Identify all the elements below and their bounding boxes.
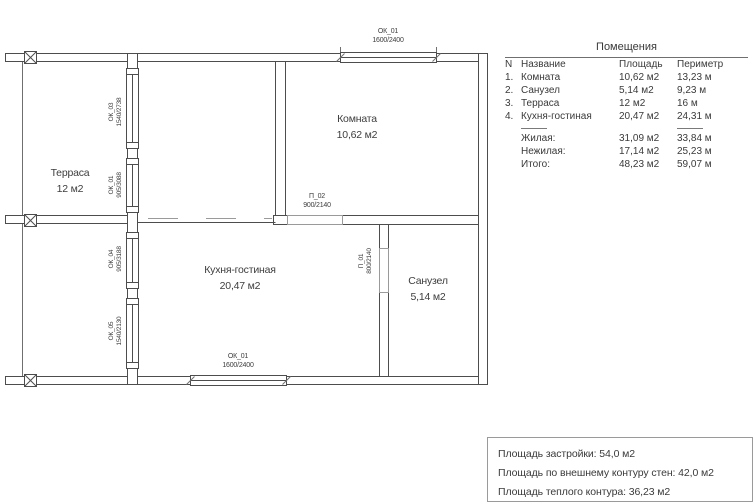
floor-plan-page: { "plan": { "room_labels": { "terrace": … [0, 0, 753, 502]
total-perimeter: 59,07 м [677, 159, 748, 171]
cell-perimeter: 24,31 м [677, 111, 748, 123]
door-code: П_01 [358, 248, 366, 274]
summary-line-warm-contour: Площадь теплого контура: 36,23 м2 [498, 483, 752, 502]
window-size: 1600/2400 [372, 36, 403, 45]
cell-name: Терраса [521, 98, 619, 110]
total-area: 31,09 м2 [619, 133, 677, 145]
window-size: 905/3188 [116, 246, 124, 272]
rooms-table-header: N Название Площадь Периметр [505, 59, 748, 71]
room-area: 10,62 м2 [337, 127, 378, 143]
cell-name: Кухня-гостиная [521, 111, 619, 123]
cell-name: Санузел [521, 85, 619, 97]
walls [6, 54, 488, 385]
room-name: Санузел [408, 273, 448, 289]
separator-dash [677, 128, 703, 129]
room-area: 20,47 м2 [204, 278, 276, 294]
summary-box: Площадь застройки: 54,0 м2 Площадь по вн… [487, 437, 753, 502]
window-left-1-label: ОК_03 1540/2738 [108, 98, 124, 127]
table-total-row: Жилая: 31,09 м2 33,84 м [505, 133, 748, 145]
door-size: 800/2140 [366, 248, 374, 274]
cell-area: 20,47 м2 [619, 111, 677, 123]
table-row: 2. Санузел 5,14 м2 9,23 м [505, 85, 748, 97]
col-header-area: Площадь [619, 59, 677, 71]
cell-area: 5,14 м2 [619, 85, 677, 97]
window-left-4-label: ОК_05 1540/2130 [108, 317, 124, 346]
window-code: ОК_01 [108, 172, 116, 198]
window-left-3-label: ОК_04 905/3188 [108, 246, 124, 272]
cell-area: 10,62 м2 [619, 72, 677, 84]
separator-dash [521, 128, 547, 129]
cell-num: 1. [505, 72, 521, 84]
room-area: 5,14 м2 [408, 289, 448, 305]
window-code: ОК_01 [222, 352, 253, 361]
window-size: 1540/2738 [116, 98, 124, 127]
table-row: 1. Комната 10,62 м2 13,23 м [505, 72, 748, 84]
room-label-kitchen: Кухня-гостиная 20,47 м2 [204, 262, 276, 294]
window-code: ОК_05 [108, 317, 116, 346]
room-name: Терраса [51, 165, 90, 181]
top-window [341, 53, 437, 63]
terrace-posts [25, 52, 37, 387]
cell-num: 4. [505, 111, 521, 123]
rooms-table-rule [505, 57, 748, 58]
summary-line-building-area: Площадь застройки: 54,0 м2 [498, 445, 752, 464]
door-size: 900/2140 [303, 201, 331, 210]
table-row: 4. Кухня-гостиная 20,47 м2 24,31 м [505, 111, 748, 123]
room-label-bathroom: Санузел 5,14 м2 [408, 273, 448, 305]
window-code: ОК_04 [108, 246, 116, 272]
rooms-table-title: Помещения [505, 40, 748, 54]
door-bath-label: П_01 800/2140 [358, 248, 374, 274]
window-top-label: ОК_01 1600/2400 [372, 27, 403, 45]
cell-perimeter: 9,23 м [677, 85, 748, 97]
cell-perimeter: 13,23 м [677, 72, 748, 84]
door-code: П_02 [303, 192, 331, 201]
cell-area: 12 м2 [619, 98, 677, 110]
cell-name: Комната [521, 72, 619, 84]
window-size: 1600/2400 [222, 361, 253, 370]
col-header-name: Название [521, 59, 619, 71]
table-separator [505, 128, 748, 129]
window-size: 905/3088 [116, 172, 124, 198]
bottom-window [191, 376, 287, 386]
col-header-num: N [505, 59, 521, 71]
table-row: 3. Терраса 12 м2 16 м [505, 98, 748, 110]
room-label-terrace: Терраса 12 м2 [51, 165, 90, 197]
summary-line-outer-contour: Площадь по внешнему контуру стен: 42,0 м… [498, 464, 752, 483]
door-main-label: П_02 900/2140 [303, 192, 331, 210]
rooms-table: Помещения N Название Площадь Периметр 1.… [505, 40, 748, 171]
table-total-row: Итого: 48,23 м2 59,07 м [505, 159, 748, 171]
total-area: 17,14 м2 [619, 146, 677, 158]
room-area: 12 м2 [51, 181, 90, 197]
window-code: ОК_03 [108, 98, 116, 127]
cell-num: 3. [505, 98, 521, 110]
total-name: Итого: [521, 159, 619, 171]
window-code: ОК_01 [372, 27, 403, 36]
open-boundary-line [138, 219, 276, 223]
window-size: 1540/2130 [116, 317, 124, 346]
total-perimeter: 25,23 м [677, 146, 748, 158]
room-label-room: Комната 10,62 м2 [337, 111, 378, 143]
total-area: 48,23 м2 [619, 159, 677, 171]
total-name: Нежилая: [521, 146, 619, 158]
cell-perimeter: 16 м [677, 98, 748, 110]
cell-num: 2. [505, 85, 521, 97]
table-total-row: Нежилая: 17,14 м2 25,23 м [505, 146, 748, 158]
room-name: Комната [337, 111, 378, 127]
window-left-2-label: ОК_01 905/3088 [108, 172, 124, 198]
window-bottom-label: ОК_01 1600/2400 [222, 352, 253, 370]
total-name: Жилая: [521, 133, 619, 145]
col-header-perimeter: Периметр [677, 59, 748, 71]
total-perimeter: 33,84 м [677, 133, 748, 145]
room-name: Кухня-гостиная [204, 262, 276, 278]
